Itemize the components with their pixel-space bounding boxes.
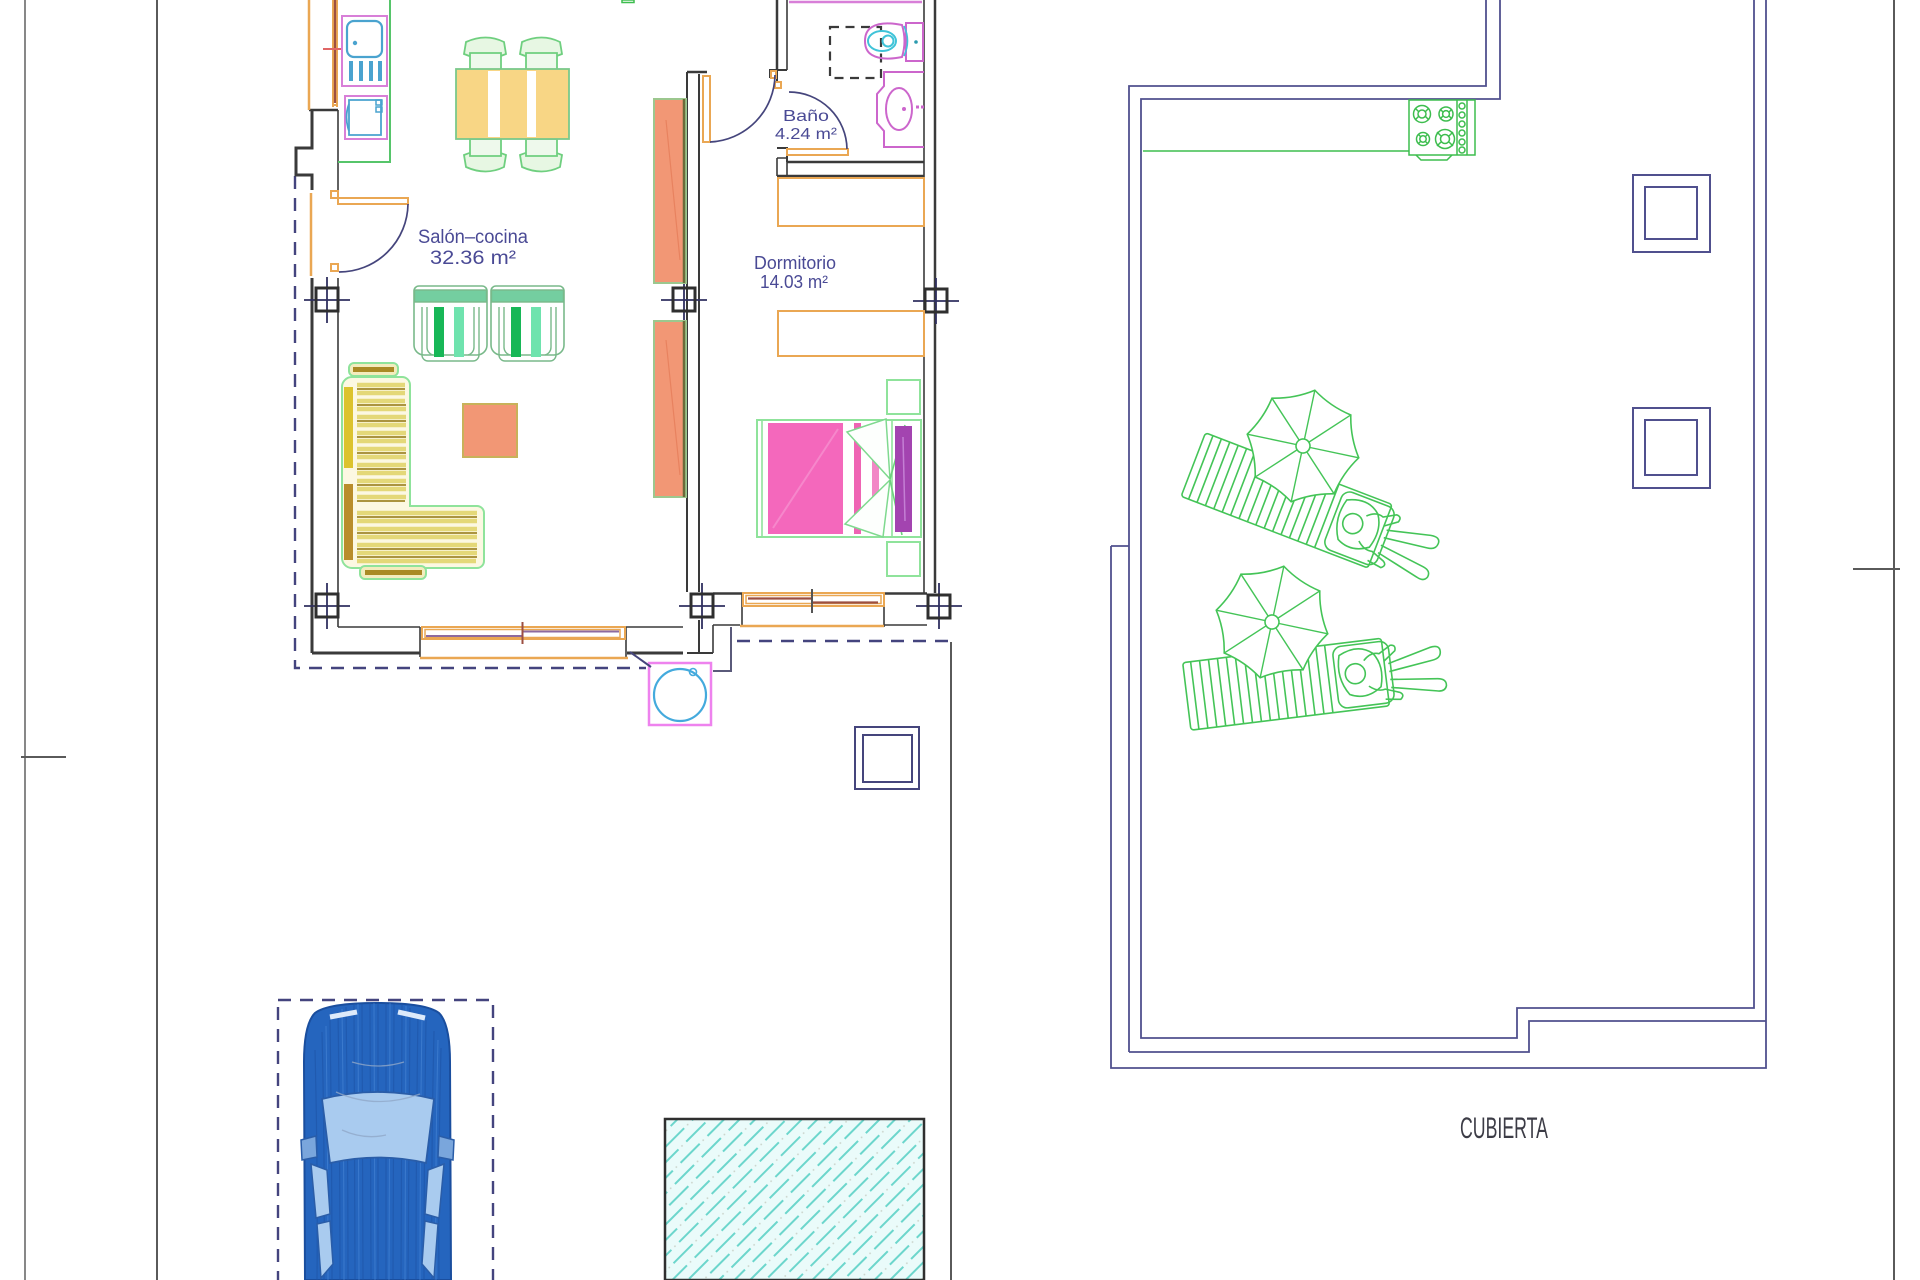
svg-text:Salón–cocina: Salón–cocina: [418, 227, 528, 248]
svg-text:Baño: Baño: [783, 108, 829, 125]
svg-text:32.36 m²: 32.36 m²: [430, 248, 516, 269]
svg-text:CUBIERTA: CUBIERTA: [1460, 1112, 1548, 1145]
svg-text:4.24 m²: 4.24 m²: [775, 126, 838, 143]
svg-text:14.03 m²: 14.03 m²: [760, 272, 828, 292]
svg-text:Dormitorio: Dormitorio: [754, 253, 836, 273]
